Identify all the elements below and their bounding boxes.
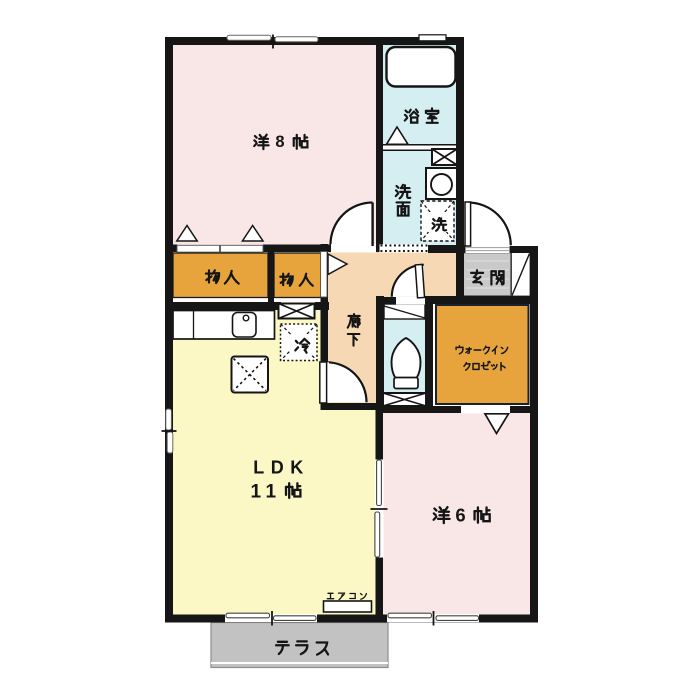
svg-text:LDK: LDK: [253, 458, 310, 478]
svg-text:8: 8: [275, 133, 284, 151]
svg-text:6: 6: [455, 505, 465, 526]
svg-text:11: 11: [250, 481, 281, 502]
